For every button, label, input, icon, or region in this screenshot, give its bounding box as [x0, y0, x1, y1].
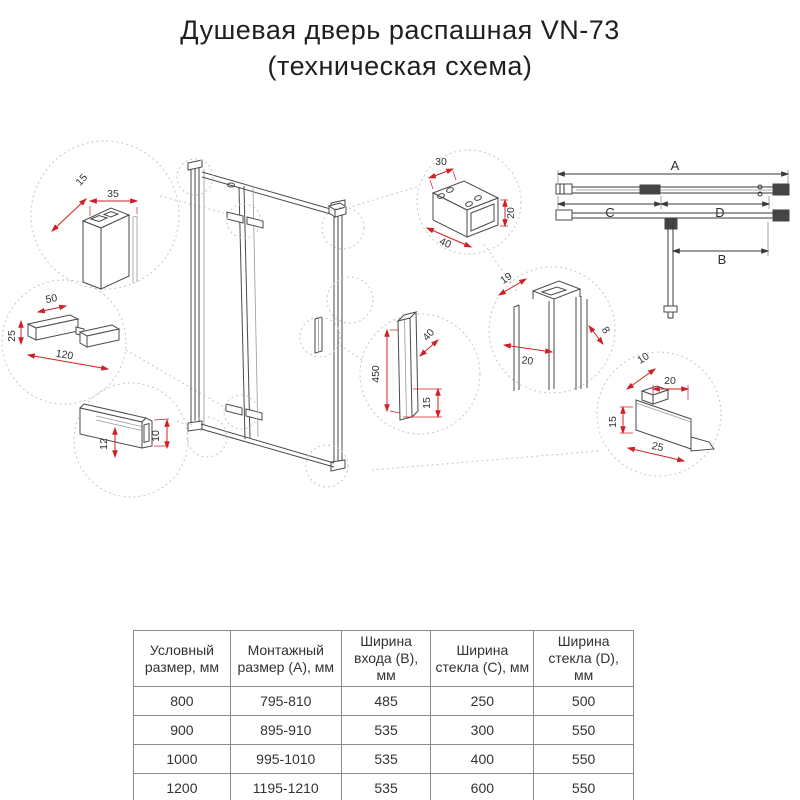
plan-view: A C D B: [556, 158, 789, 318]
col-header-nominal-size: Условный размер, мм: [134, 631, 231, 687]
dim-handle-length: 450: [370, 365, 382, 383]
dim-wall-depth: 15: [73, 172, 90, 189]
cell: 550: [534, 745, 634, 774]
cell: 600: [431, 774, 534, 800]
cell: 550: [534, 774, 634, 800]
table-row: 800 795-810 485 250 500: [134, 687, 634, 716]
detail-jamb-profile: 19 20 8: [489, 267, 615, 393]
dim-jamb-c: 8: [599, 324, 612, 336]
detail-wall-profile: 35 15: [31, 141, 179, 289]
top-hinge: [227, 212, 243, 223]
cell: 900: [134, 716, 231, 745]
col-header-mounting-size: Монтажный размер (А), мм: [230, 631, 341, 687]
title-line-2: (техническая схема): [0, 48, 800, 84]
detail-top-bracket: 30 40 20: [417, 150, 521, 254]
dim-channel-height: 10: [150, 430, 162, 442]
dim-holder-d: 25: [651, 440, 665, 454]
dim-channel-inner: 12: [98, 438, 110, 450]
dim-holder-b: 20: [664, 375, 676, 387]
cell: 995-1010: [230, 745, 341, 774]
table-row: 900 895-910 535 300 550: [134, 716, 634, 745]
plan-dim-b: B: [718, 252, 727, 267]
detail-hinge: 50 25 120: [2, 280, 126, 404]
table-row: 1200 1195-1210 535 600 550: [134, 774, 634, 800]
bottom-hinge: [226, 404, 242, 415]
dim-bracket-height: 20: [505, 207, 517, 219]
cell: 1200: [134, 774, 231, 800]
size-table: Условный размер, мм Монтажный размер (А)…: [133, 630, 634, 800]
cell: 400: [431, 745, 534, 774]
dim-jamb-a: 19: [498, 270, 515, 287]
cell: 895-910: [230, 716, 341, 745]
dim-bracket-width: 30: [435, 156, 447, 168]
col-header-glass-d-width: Ширина стекла (D), мм: [534, 631, 634, 687]
cell: 1000: [134, 745, 231, 774]
title-line-1: Душевая дверь распашная VN-73: [0, 12, 800, 48]
plan-dim-a: A: [671, 158, 680, 173]
detail-handle: 450 40 15: [360, 312, 480, 434]
cell: 250: [431, 687, 534, 716]
table-header-row: Условный размер, мм Монтажный размер (А)…: [134, 631, 634, 687]
detail-glass-holder: 10 20 15 25: [597, 350, 721, 476]
col-header-glass-c-width: Ширина стекла (С), мм: [431, 631, 534, 687]
dim-holder-c: 15: [607, 416, 619, 428]
dim-handle-offset: 15: [421, 397, 433, 409]
cell: 800: [134, 687, 231, 716]
dim-handle-depth: 40: [420, 327, 437, 344]
cell: 485: [341, 687, 431, 716]
col-header-entry-width: Ширина входа (В), мм: [341, 631, 431, 687]
cell: 1195-1210: [230, 774, 341, 800]
detail-bottom-channel: 12 10: [74, 383, 188, 497]
dim-jamb-b: 20: [521, 354, 534, 367]
cell: 535: [341, 745, 431, 774]
dim-hinge-top: 50: [45, 292, 59, 306]
door-drawing: [177, 159, 373, 487]
cell: 550: [534, 716, 634, 745]
dim-wall-width: 35: [107, 188, 119, 200]
table-row: 1000 995-1010 535 400 550: [134, 745, 634, 774]
cell: 535: [341, 716, 431, 745]
cell: 535: [341, 774, 431, 800]
technical-sheet: Душевая дверь распашная VN-73 (техническ…: [0, 0, 800, 800]
page-title: Душевая дверь распашная VN-73 (техническ…: [0, 12, 800, 84]
cell: 795-810: [230, 687, 341, 716]
cell: 300: [431, 716, 534, 745]
dim-hinge-height: 25: [6, 330, 18, 342]
cell: 500: [534, 687, 634, 716]
technical-drawing: 35 15 50 25 120: [0, 120, 800, 520]
